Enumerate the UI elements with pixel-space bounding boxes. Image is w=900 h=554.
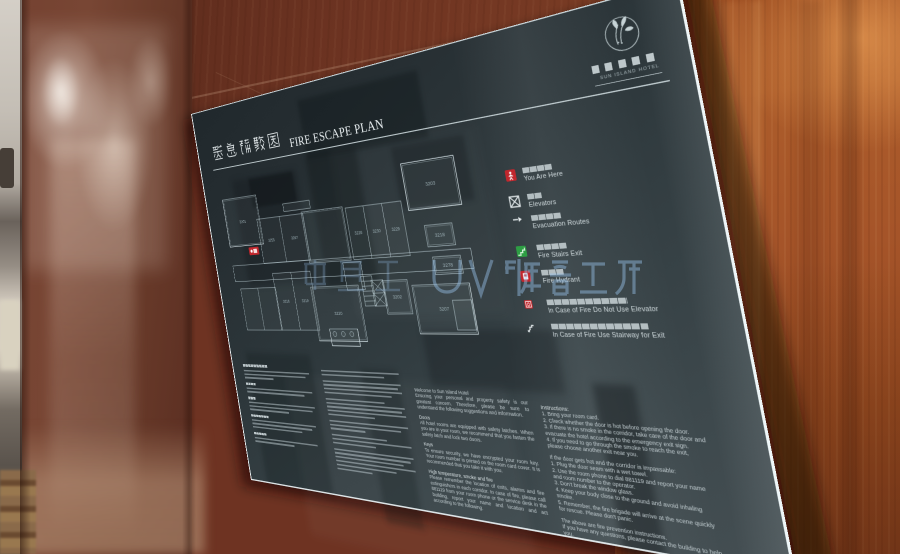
- svg-text:3229: 3229: [391, 226, 401, 233]
- svg-text:3218: 3218: [434, 231, 445, 238]
- svg-text:3267: 3267: [291, 235, 299, 241]
- svg-text:3201: 3201: [239, 219, 247, 225]
- svg-text:3220: 3220: [334, 311, 343, 317]
- svg-text:3203: 3203: [425, 180, 436, 188]
- svg-text:3207: 3207: [439, 306, 450, 313]
- svg-text:3230: 3230: [372, 228, 381, 235]
- svg-text:3318: 3318: [283, 299, 291, 305]
- svg-text:3255: 3255: [268, 237, 275, 243]
- svg-text:3228: 3228: [354, 230, 363, 237]
